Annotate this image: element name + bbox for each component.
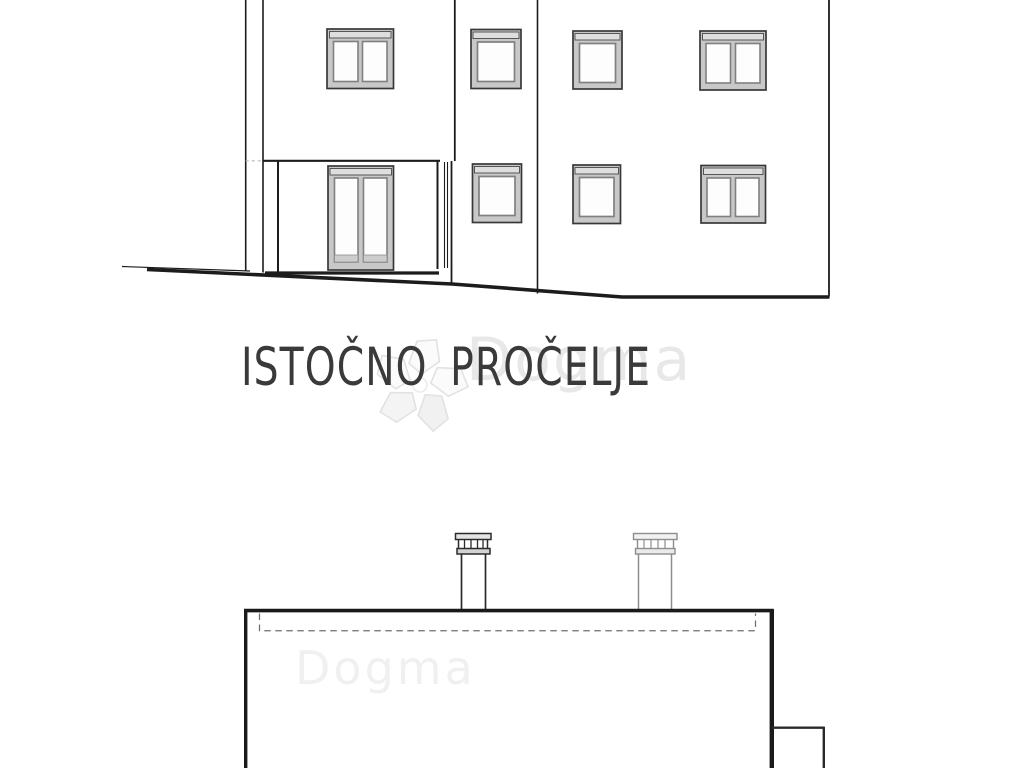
lower-body-outline xyxy=(244,609,774,768)
drawing-title: ISTOČNO PROČELJE xyxy=(241,341,651,394)
window-single-main-lower xyxy=(573,165,621,224)
architectural-drawing-page: Dogma Dogma xyxy=(0,0,1024,768)
window-single-bay-upper xyxy=(471,30,521,89)
dashed-hidden-line xyxy=(260,614,756,631)
side-wall-strip xyxy=(246,0,263,273)
window-single-bay-lower xyxy=(473,164,522,223)
ground-line xyxy=(122,267,830,298)
window-single-main-upper xyxy=(573,31,622,89)
entrance-door xyxy=(328,166,394,270)
window-double-main-lower xyxy=(701,166,766,224)
facade-openings xyxy=(327,29,766,270)
chimney-2 xyxy=(634,534,678,611)
chimney-1 xyxy=(456,534,492,611)
window-double-main-upper xyxy=(700,31,766,90)
lower-elevation-drawing xyxy=(244,534,824,768)
window-double-left-upper xyxy=(327,29,394,89)
side-extension-outline xyxy=(772,727,824,768)
